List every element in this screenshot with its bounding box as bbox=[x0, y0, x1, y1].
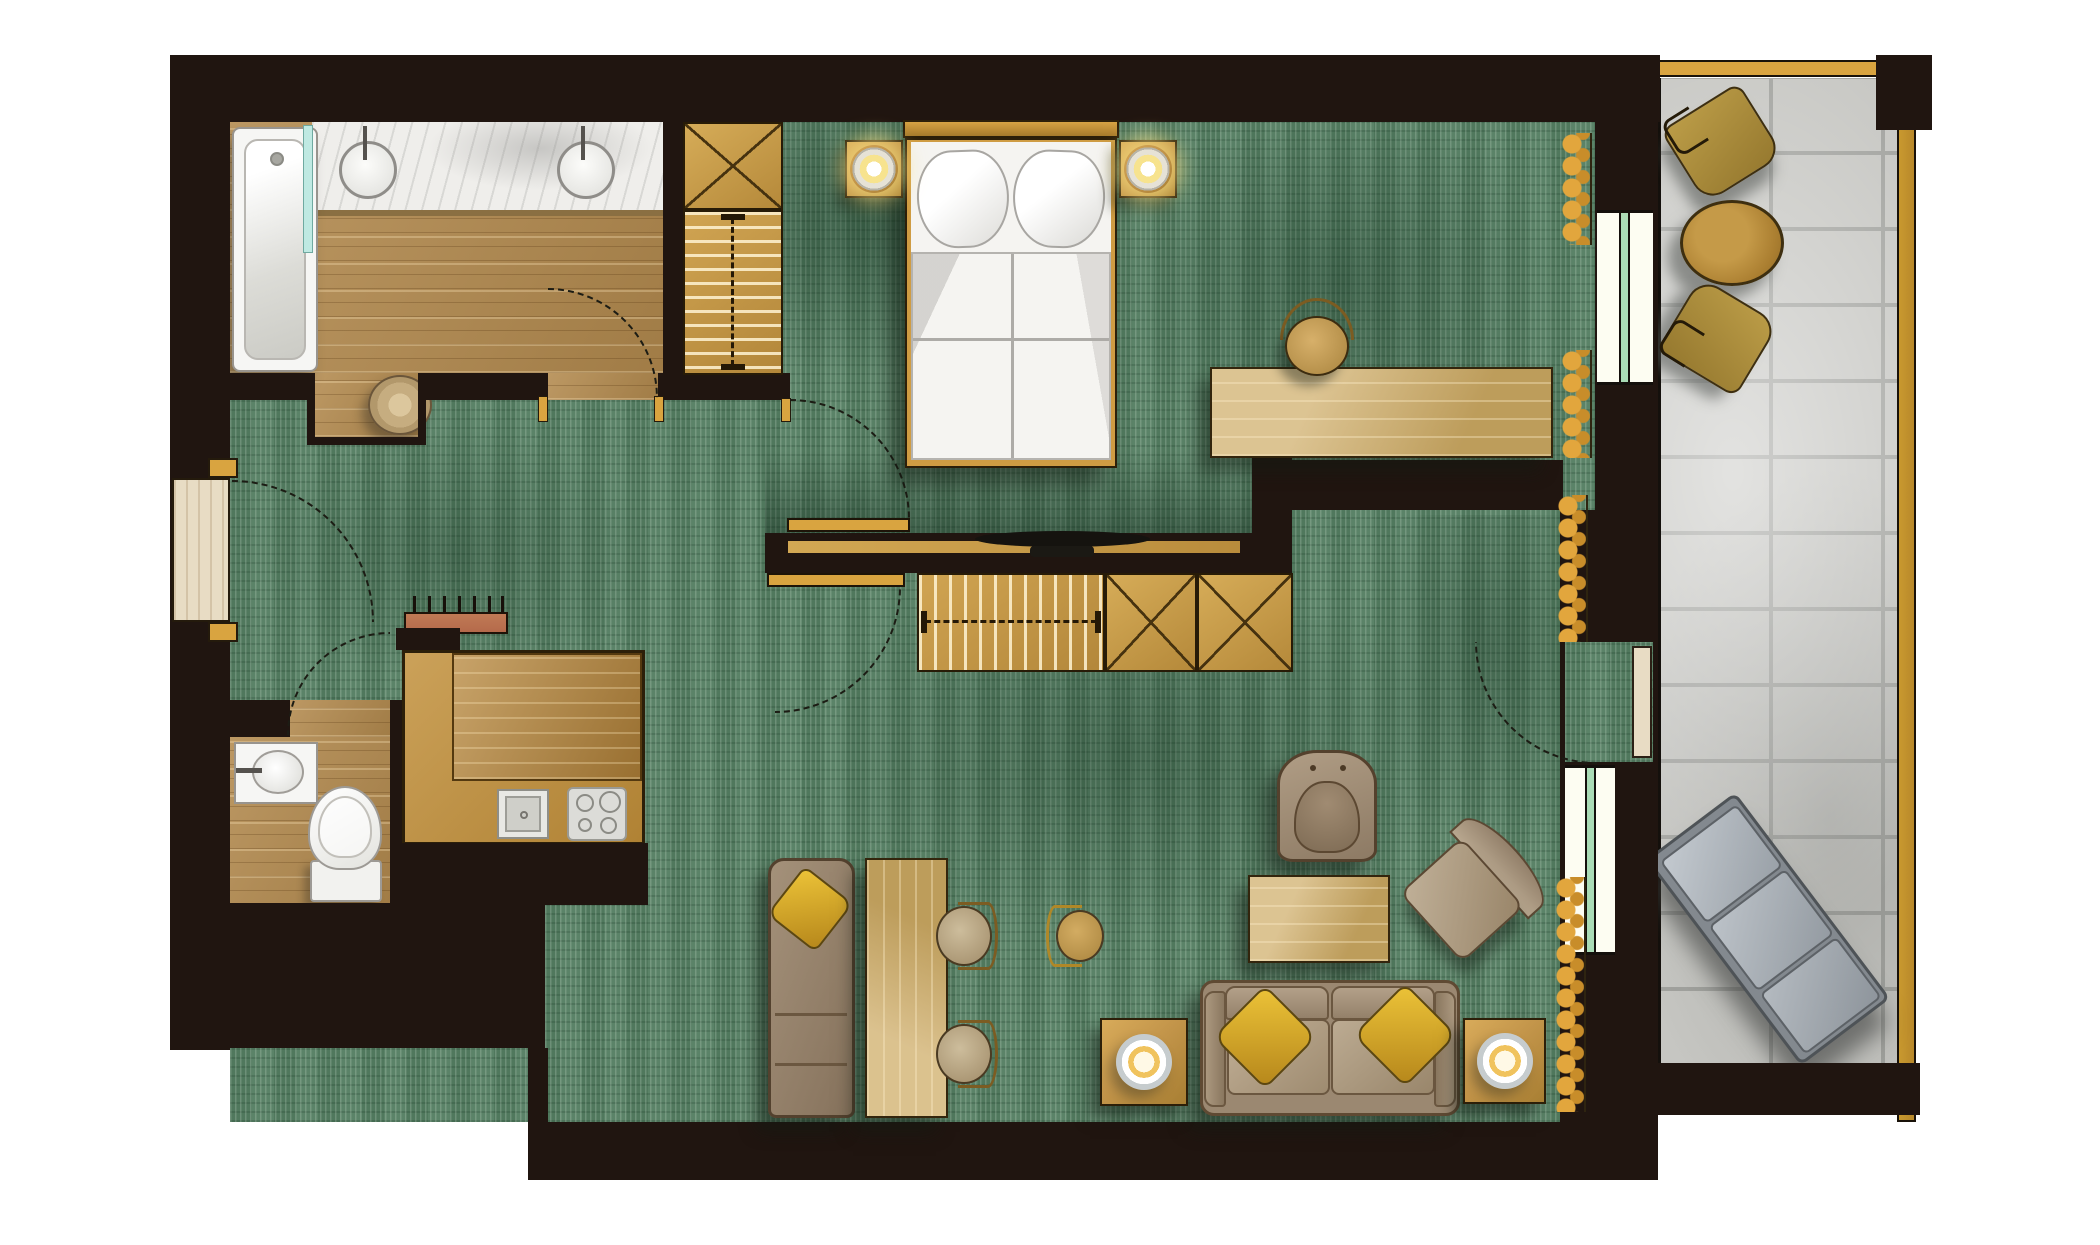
sideboard-cabinet bbox=[1105, 573, 1197, 672]
desk bbox=[1210, 367, 1553, 458]
rail-cap-icon bbox=[721, 364, 745, 370]
wall-kitchen-top bbox=[396, 628, 460, 650]
glass-partition bbox=[303, 125, 313, 253]
side-table-lamp bbox=[1477, 1033, 1533, 1089]
hall-wardrobe-rail-section bbox=[683, 210, 783, 375]
armchair bbox=[1277, 750, 1377, 862]
curtain bbox=[1562, 350, 1592, 458]
wall-wc-top bbox=[217, 700, 290, 737]
side-table-lamp bbox=[1116, 1034, 1172, 1090]
nightstand-lamp bbox=[850, 145, 898, 193]
sofa-arm bbox=[1204, 991, 1226, 1107]
dining-chair-seat bbox=[936, 1024, 992, 1084]
balcony-rail-top bbox=[1655, 60, 1878, 77]
armchair-button-icon bbox=[1340, 765, 1346, 771]
door-jamb bbox=[208, 622, 238, 642]
hall-wardrobe-cabinet bbox=[683, 122, 783, 210]
rail-cap-icon bbox=[921, 611, 927, 633]
window-glazing bbox=[1619, 213, 1630, 382]
side-chair-seat bbox=[1056, 910, 1104, 962]
sideboard-cabinet bbox=[1197, 573, 1293, 672]
balcony-door-leaf bbox=[1632, 646, 1652, 758]
wall-wc-right bbox=[390, 737, 402, 905]
wall-bottom-left bbox=[170, 903, 545, 1048]
coffee-table bbox=[1248, 875, 1390, 963]
wall-bottom-living bbox=[528, 1122, 1658, 1180]
wall-bathroom-right bbox=[663, 122, 683, 400]
duvet-seam-icon bbox=[913, 338, 1109, 341]
wall-step bbox=[528, 1048, 548, 1126]
wall-notch bbox=[307, 437, 426, 445]
desk-chair-seat bbox=[1285, 316, 1349, 376]
door-jamb bbox=[654, 396, 664, 422]
burner-icon bbox=[578, 818, 592, 832]
living-door-leaf bbox=[767, 573, 905, 587]
faucet-icon bbox=[363, 126, 367, 160]
sideboard-rail-section bbox=[917, 573, 1105, 672]
door-jamb bbox=[208, 458, 238, 478]
curtain bbox=[1562, 133, 1592, 245]
duvet-seam-icon bbox=[1011, 254, 1014, 458]
curtain bbox=[1558, 495, 1588, 642]
wall-corner-topright bbox=[1876, 55, 1932, 130]
wall-top bbox=[170, 55, 1660, 122]
burner-icon bbox=[600, 817, 617, 834]
burner-icon bbox=[576, 794, 594, 812]
chaise-seam-icon bbox=[775, 1013, 847, 1016]
balcony-rail-right bbox=[1897, 74, 1916, 1122]
chaise-seam-icon bbox=[775, 1063, 847, 1066]
wall-balcony-bottom bbox=[1640, 1063, 1920, 1115]
rail-cap-icon bbox=[721, 214, 745, 220]
bedroom-door-leaf bbox=[787, 518, 910, 532]
dining-table bbox=[865, 858, 948, 1118]
vanity-basin bbox=[557, 141, 615, 199]
burner-icon bbox=[599, 791, 621, 813]
hanging-rail-icon bbox=[731, 218, 734, 366]
tv-stand bbox=[1030, 546, 1094, 557]
bed-duvet bbox=[911, 252, 1111, 460]
window-glazing bbox=[1585, 768, 1596, 952]
balcony-table bbox=[1680, 200, 1784, 286]
curtain bbox=[1556, 877, 1586, 1112]
armchair-button-icon bbox=[1310, 765, 1316, 771]
wall-below-closet bbox=[683, 373, 790, 400]
kitchen-faucet-icon bbox=[520, 811, 528, 819]
entry-door-leaf bbox=[172, 478, 230, 622]
kitchen-worktop bbox=[452, 653, 642, 781]
bathtub-inner bbox=[244, 139, 306, 360]
vanity-basin bbox=[339, 141, 397, 199]
wall-under-kitchen bbox=[396, 843, 648, 905]
wall-wc-top bbox=[390, 700, 402, 737]
floor-plan bbox=[0, 0, 2100, 1245]
coat-hook-icon bbox=[413, 596, 416, 612]
bedroom-living-divider bbox=[1252, 460, 1563, 510]
bathtub-drain-icon bbox=[270, 152, 284, 166]
faucet-icon bbox=[581, 126, 585, 160]
armchair-seat bbox=[1294, 781, 1360, 853]
wall-bathroom-bottom bbox=[418, 373, 548, 400]
faucet-icon bbox=[236, 768, 262, 773]
dining-chair-seat bbox=[936, 906, 992, 966]
rail-cap-icon bbox=[1095, 611, 1101, 633]
nightstand-lamp bbox=[1124, 145, 1172, 193]
bedroom-window bbox=[1597, 210, 1653, 385]
door-jamb bbox=[538, 396, 548, 422]
door-jamb bbox=[781, 398, 791, 422]
tv bbox=[975, 531, 1150, 547]
bed-headboard bbox=[903, 120, 1119, 138]
wall-bathroom-bottom bbox=[230, 373, 315, 400]
hanging-rail-icon bbox=[925, 620, 1097, 623]
toilet-seat bbox=[318, 796, 372, 858]
